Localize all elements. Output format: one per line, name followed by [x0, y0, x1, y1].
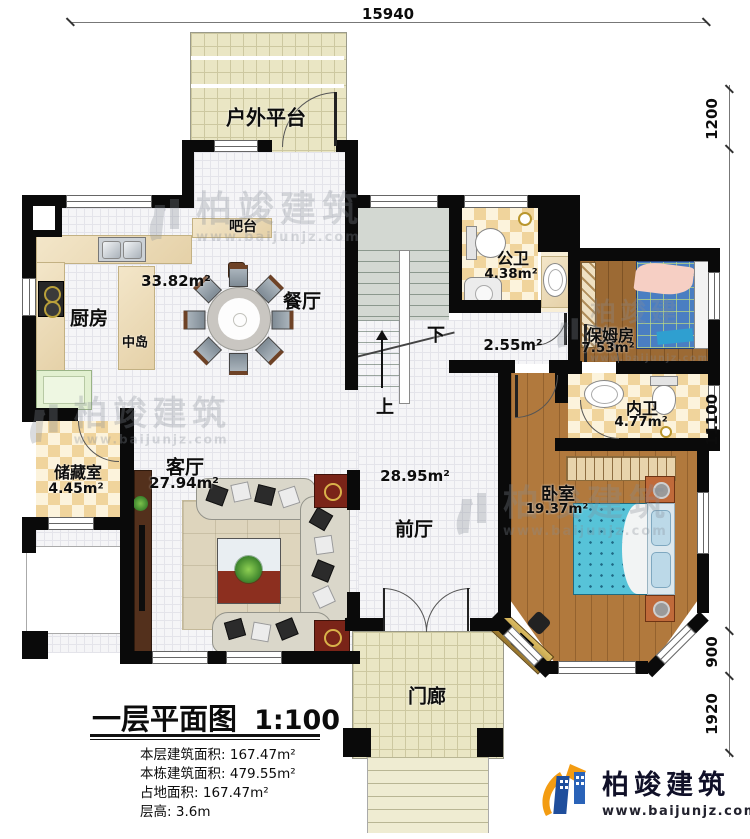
plant	[133, 496, 148, 511]
bed-pillow	[651, 552, 671, 588]
dimension-right-label: 900	[703, 636, 721, 667]
company-website: www.baijunjz.com	[602, 804, 750, 819]
stats-block: 本层建筑面积: 167.47m² 本栋建筑面积: 479.55m² 占地面积: …	[140, 746, 296, 822]
wall-niche	[33, 206, 55, 230]
wall	[616, 361, 720, 374]
platform-step-line	[191, 84, 344, 88]
dimension-top-label: 15940	[362, 5, 414, 23]
room-area-living: 27.94m²	[149, 474, 219, 492]
wall	[258, 140, 272, 152]
kitchen-sink	[98, 237, 146, 262]
room-area-bedroom: 19.37m²	[526, 501, 589, 517]
window	[66, 195, 152, 208]
porch-column	[343, 728, 371, 757]
hall-door-leaf	[515, 375, 518, 417]
nightstand	[645, 476, 675, 503]
company-logo-icon	[540, 760, 592, 822]
basin-inner	[548, 269, 563, 291]
plan-scale: 1:100	[254, 705, 340, 736]
room-label-bar: 吧台	[229, 216, 257, 236]
stat-row: 层高: 3.6m	[140, 803, 296, 822]
wall	[188, 140, 214, 152]
room-label-dining: 餐厅	[283, 287, 321, 314]
bed-pillow	[651, 510, 671, 546]
stair-direction-arrow	[381, 338, 383, 388]
room-area-nanny: 7.53m²	[581, 340, 634, 356]
dimension-right-label: 11100	[703, 394, 721, 446]
wall	[568, 208, 580, 373]
brand-logo: 柏竣建筑 www.baijunjz.com	[540, 760, 750, 822]
window	[48, 517, 94, 530]
platform-step-line	[191, 56, 344, 60]
nightstand	[645, 595, 675, 622]
platform-door-leaf	[334, 92, 337, 146]
wall	[22, 237, 36, 422]
dimension-right-label: 1200	[703, 98, 721, 140]
window	[226, 651, 282, 664]
nanny-blanket	[633, 261, 694, 298]
dining-chair	[184, 311, 206, 330]
wall	[568, 361, 582, 374]
room-area-foyer: 28.95m²	[380, 467, 450, 485]
headboard	[647, 503, 675, 595]
dimension-line-right	[729, 85, 730, 757]
wall	[22, 517, 36, 553]
fridge	[36, 370, 92, 410]
tv	[139, 525, 145, 611]
wash-basin	[543, 263, 567, 297]
wall	[345, 195, 358, 390]
window	[22, 278, 36, 316]
room-label-foyer: 前厅	[395, 515, 433, 542]
title-underline	[90, 739, 320, 740]
stairs-up-label: 上	[376, 393, 394, 419]
window	[370, 195, 438, 208]
plan-title: 一层平面图	[92, 702, 237, 736]
wall	[449, 300, 541, 313]
lamp	[653, 601, 670, 618]
sofa-pillow	[314, 535, 334, 555]
wall	[470, 618, 503, 631]
side-table-ring	[324, 629, 342, 647]
sink-basin	[123, 241, 142, 259]
wall	[120, 452, 134, 664]
room-area-stair-hall: 2.55m²	[483, 336, 542, 354]
wall	[449, 360, 515, 373]
dining-table-center	[233, 313, 247, 327]
plant	[235, 556, 262, 583]
room-area-storage: 4.45m²	[48, 481, 103, 497]
dimension-right-label: 1920	[703, 693, 721, 735]
room-area-public-bath: 4.38m²	[484, 266, 537, 282]
stat-row: 占地面积: 167.47m²	[140, 784, 296, 803]
stair-arrow-head	[376, 330, 388, 340]
wall	[555, 438, 720, 451]
side-table	[314, 474, 350, 508]
nanny-bed	[636, 261, 696, 349]
title-underline	[90, 734, 320, 737]
wall	[345, 618, 383, 631]
room-area-inner-bath: 4.77m²	[614, 414, 667, 430]
sink-basin	[102, 241, 121, 259]
window	[214, 140, 258, 152]
fridge-inner	[43, 376, 85, 404]
room-label-platform: 户外平台	[226, 102, 306, 131]
stair-stringer	[399, 250, 410, 404]
window	[697, 492, 709, 554]
window	[464, 195, 528, 208]
dining-chair	[229, 265, 248, 287]
porch-column	[477, 728, 503, 757]
towel-ring	[518, 212, 532, 226]
left-window-bay	[26, 546, 122, 634]
side-table-ring	[324, 483, 342, 501]
nanny-sheet	[656, 328, 693, 345]
bed-fold	[622, 504, 648, 594]
stat-row: 本栋建筑面积: 479.55m²	[140, 765, 296, 784]
plan-title-block: 一层平面图 1:100	[92, 696, 340, 738]
wall	[22, 408, 78, 421]
room-label-storage: 储藏室	[54, 459, 102, 483]
floor-plan: 户外平台 吧台 33.82m² 餐厅 厨房 中岛 公卫 4.38m² 保姆房 7…	[0, 0, 750, 839]
stove	[38, 281, 64, 317]
sofa-pillow	[251, 622, 272, 643]
wall	[568, 248, 720, 261]
room-label-kitchen: 厨房	[70, 304, 108, 331]
sofa-pillow	[230, 481, 251, 502]
wall	[22, 631, 48, 659]
floor-bar	[194, 152, 345, 210]
window	[152, 651, 208, 664]
wall	[449, 195, 462, 312]
stat-row: 本层建筑面积: 167.47m²	[140, 746, 296, 765]
window	[708, 272, 720, 320]
burner	[44, 301, 61, 318]
dining-chair	[229, 353, 248, 375]
bath-door-leaf	[564, 313, 567, 345]
room-area-dining: 33.82m²	[141, 272, 211, 290]
wall	[347, 470, 360, 510]
entry-door-leaf	[383, 588, 385, 631]
room-label-island: 中岛	[122, 332, 148, 351]
wall	[498, 373, 511, 618]
stairs-down-label: 下	[427, 321, 445, 347]
porch-steps	[367, 757, 489, 833]
entry-door-leaf	[467, 588, 469, 631]
window	[558, 661, 636, 674]
lamp	[653, 482, 670, 499]
room-label-porch: 门廊	[408, 682, 446, 709]
company-name: 柏竣建筑	[602, 763, 750, 802]
